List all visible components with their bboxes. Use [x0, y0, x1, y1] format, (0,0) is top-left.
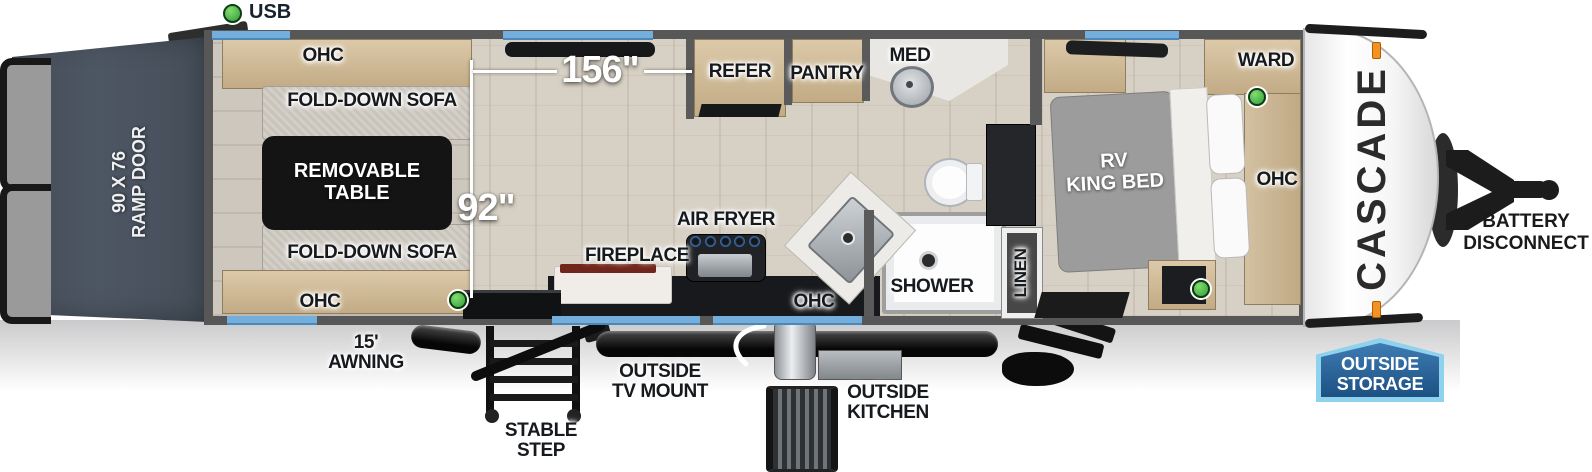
entry-step-well [463, 290, 561, 319]
burner [734, 236, 745, 247]
air-fryer-label: AIR FRYER [676, 210, 776, 230]
dim-156-line-left [473, 70, 557, 73]
oven-front [698, 254, 752, 277]
stable-step-label: STABLE STEP [482, 421, 600, 461]
window-bottom-kitchen [713, 316, 862, 325]
garage-ohc-top-label: OHC [295, 46, 351, 66]
pillow [1210, 177, 1250, 259]
dim-156-label: 156" [552, 49, 648, 92]
battery-disconnect-label: BATTERY DISCONNECT [1460, 211, 1592, 255]
outside-kitchen-label: OUTSIDE KITCHEN [832, 383, 944, 423]
window-top-living [503, 31, 653, 40]
outside-storage-label: OUTSIDE STORAGE [1316, 355, 1444, 395]
kitchen-ohc-label: OHC [786, 292, 842, 312]
shower-drain [922, 254, 935, 267]
burner [690, 236, 701, 247]
window-bottom-living [552, 316, 700, 325]
wall-bath-left [864, 210, 874, 316]
outside-kitchen-canister [774, 320, 816, 380]
kitchen-faucet [843, 233, 853, 243]
linen-label: LINEN [1012, 237, 1032, 309]
dim-92-line [470, 60, 473, 298]
usb-port-garage [449, 291, 467, 309]
bedroom-ohc [1244, 93, 1301, 305]
burner [749, 236, 760, 247]
burner [720, 236, 731, 247]
entry-step-base [1002, 352, 1074, 386]
bedroom-ohc-label: OHC [1252, 170, 1302, 190]
usb-legend-dot [223, 4, 242, 23]
floorplan-canvas: 90 X 76 RAMP DOOR OHC FOLD-DOWN SOFA REM… [0, 0, 1592, 472]
marker-light-top [1372, 42, 1381, 59]
refer-label: REFER [700, 62, 780, 82]
window-bottom-garage [227, 316, 317, 325]
outside-kitchen-box [818, 350, 902, 380]
king-bed-label: RV KING BED [1053, 147, 1177, 197]
pillow [1206, 93, 1246, 175]
brand-logo: CASCADE [1350, 58, 1394, 298]
ramp-door-label: 90 X 76 RAMP DOOR [110, 97, 170, 267]
stable-step [468, 318, 608, 424]
bath-cabinet [986, 124, 1036, 226]
pantry-label: PANTRY [787, 64, 867, 84]
stove-burners [690, 236, 760, 249]
awning-label: 15' AWNING [315, 333, 417, 373]
removable-table-label: REMOVABLE TABLE [272, 160, 442, 204]
med-label: MED [886, 46, 934, 66]
tv-mount-label: OUTSIDE TV MOUNT [604, 362, 716, 402]
bath-sink-drain [906, 81, 913, 88]
refrigerator-front [698, 104, 781, 117]
ward-label: WARD [1234, 51, 1298, 71]
outside-kitchen-hose [724, 322, 772, 370]
shower-label: SHOWER [878, 277, 986, 297]
rear-bumper-bottom [0, 184, 51, 324]
wall-bedroom-left [1030, 39, 1042, 125]
fold-down-sofa-top-label: FOLD-DOWN SOFA [272, 91, 472, 111]
usb-port-bedroom-top [1248, 88, 1266, 106]
usb-port-bedroom-bottom [1192, 280, 1210, 298]
dim-92-label: 92" [446, 187, 526, 230]
marker-light-bottom [1372, 301, 1381, 318]
bedroom-entry-landing [1034, 292, 1129, 318]
bath-sink [890, 66, 934, 108]
window-top-garage [212, 31, 290, 40]
usb-legend-label: USB [249, 1, 309, 24]
rear-bumper-top [0, 58, 51, 192]
wall-refer-left [686, 39, 694, 119]
outside-kitchen-griddle [766, 386, 838, 472]
king-bed: RV KING BED [1049, 81, 1254, 277]
entry-steps-bedroom [996, 314, 1120, 394]
toilet-tank [966, 163, 983, 201]
dim-156-line-right [644, 70, 692, 73]
window-top-bedroom [1085, 31, 1179, 40]
garage-ohc-bottom-label: OHC [292, 292, 348, 312]
fireplace-label: FIREPLACE [585, 246, 685, 266]
fold-down-sofa-bottom-label: FOLD-DOWN SOFA [272, 243, 472, 263]
burner [705, 236, 716, 247]
